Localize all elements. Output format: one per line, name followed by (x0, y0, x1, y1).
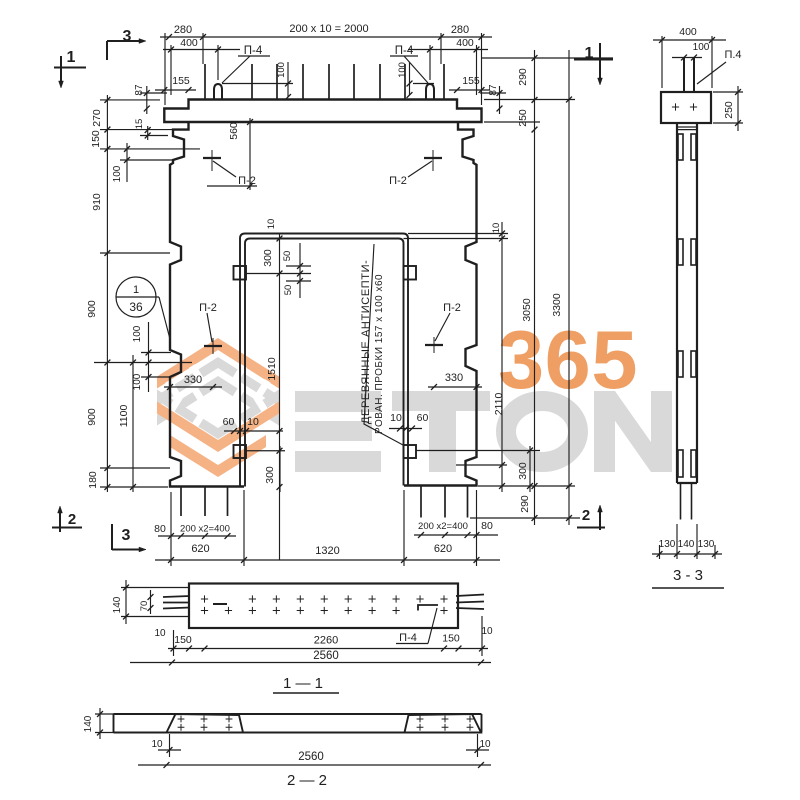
svg-text:3050: 3050 (521, 298, 533, 322)
svg-text:1: 1 (133, 284, 139, 296)
svg-text:3300: 3300 (551, 293, 563, 317)
svg-text:10: 10 (151, 739, 163, 750)
svg-text:560: 560 (228, 122, 240, 140)
svg-text:10: 10 (247, 416, 259, 428)
svg-text:1510: 1510 (266, 357, 278, 381)
svg-text:10: 10 (491, 223, 502, 234)
svg-text:620: 620 (191, 543, 209, 555)
svg-text:280: 280 (174, 24, 192, 36)
svg-text:140: 140 (83, 715, 94, 732)
svg-text:15: 15 (134, 119, 145, 130)
svg-text:270: 270 (91, 109, 103, 127)
svg-text:330: 330 (445, 372, 463, 384)
svg-text:П-2: П-2 (443, 302, 461, 314)
svg-text:ДЕРЕВЯННЫЕ АНТИСЕПТИ-: ДЕРЕВЯННЫЕ АНТИСЕПТИ- (360, 260, 372, 424)
svg-text:200 х2=400: 200 х2=400 (180, 524, 230, 535)
svg-text:80: 80 (154, 523, 166, 535)
svg-text:2110: 2110 (493, 393, 505, 416)
svg-text:1320: 1320 (315, 545, 339, 557)
svg-text:П-4: П-4 (244, 45, 263, 57)
svg-text:130: 130 (659, 539, 676, 550)
svg-text:900: 900 (86, 408, 98, 426)
svg-text:400: 400 (180, 37, 198, 49)
svg-text:155: 155 (172, 75, 190, 87)
svg-text:200 х2=400: 200 х2=400 (418, 521, 468, 532)
svg-text:10: 10 (479, 739, 491, 750)
svg-text:290: 290 (519, 495, 531, 513)
svg-text:87: 87 (134, 84, 145, 96)
svg-text:10: 10 (154, 628, 166, 639)
svg-text:РОВАН. ПРОБКИ 157 х 100 х60: РОВАН. ПРОБКИ 157 х 100 х60 (374, 274, 385, 434)
svg-text:100: 100 (693, 42, 710, 53)
svg-text:290: 290 (517, 68, 529, 86)
svg-text:100: 100 (132, 373, 143, 390)
svg-text:250: 250 (517, 109, 529, 127)
svg-text:300: 300 (262, 249, 274, 267)
svg-text:П-2: П-2 (389, 175, 407, 187)
svg-text:10: 10 (390, 412, 402, 424)
svg-text:80: 80 (481, 520, 493, 532)
svg-text:400: 400 (456, 37, 474, 49)
svg-text:70: 70 (139, 601, 150, 612)
svg-text:2: 2 (582, 507, 590, 524)
svg-text:100: 100 (397, 62, 408, 78)
svg-text:П-4: П-4 (399, 632, 417, 644)
svg-text:3: 3 (122, 527, 131, 544)
svg-text:П.4: П.4 (724, 49, 741, 61)
svg-text:155: 155 (462, 75, 480, 87)
svg-text:100: 100 (276, 62, 287, 78)
svg-text:250: 250 (723, 101, 735, 119)
svg-text:2 — 2: 2 — 2 (287, 772, 327, 789)
svg-text:36: 36 (129, 300, 143, 314)
svg-text:2260: 2260 (314, 635, 338, 647)
svg-text:60: 60 (417, 412, 429, 424)
svg-text:620: 620 (434, 543, 452, 555)
svg-text:330: 330 (184, 374, 202, 386)
svg-text:1 — 1: 1 — 1 (283, 675, 323, 692)
svg-text:2560: 2560 (298, 751, 324, 763)
svg-text:П-2: П-2 (238, 175, 256, 187)
svg-text:140: 140 (678, 539, 695, 550)
svg-text:300: 300 (264, 466, 276, 484)
svg-text:140: 140 (112, 596, 123, 613)
svg-text:150: 150 (174, 634, 192, 646)
svg-text:10: 10 (266, 219, 277, 230)
svg-text:1: 1 (67, 49, 76, 66)
svg-text:100: 100 (112, 165, 123, 182)
svg-text:100: 100 (132, 325, 143, 342)
svg-text:900: 900 (86, 300, 98, 318)
svg-text:П-2: П-2 (199, 302, 217, 314)
svg-text:П-4: П-4 (395, 45, 414, 57)
svg-text:3 - 3: 3 - 3 (673, 567, 703, 584)
svg-text:200 x 10 = 2000: 200 x 10 = 2000 (289, 23, 368, 35)
svg-text:50: 50 (282, 251, 293, 262)
svg-text:10: 10 (481, 626, 493, 637)
svg-text:365: 365 (498, 313, 638, 406)
svg-text:1100: 1100 (118, 405, 130, 428)
svg-text:180: 180 (87, 471, 99, 489)
svg-text:400: 400 (679, 26, 697, 38)
svg-text:87: 87 (488, 84, 499, 96)
svg-text:300: 300 (517, 462, 529, 480)
svg-text:60: 60 (223, 416, 235, 428)
svg-text:150: 150 (90, 130, 102, 148)
svg-text:280: 280 (451, 24, 469, 36)
svg-text:50: 50 (283, 285, 294, 296)
svg-text:2: 2 (68, 511, 76, 528)
svg-text:2560: 2560 (313, 650, 339, 662)
svg-text:150: 150 (442, 633, 460, 645)
svg-text:3: 3 (123, 28, 132, 45)
svg-text:130: 130 (698, 539, 715, 550)
svg-text:910: 910 (91, 193, 103, 211)
